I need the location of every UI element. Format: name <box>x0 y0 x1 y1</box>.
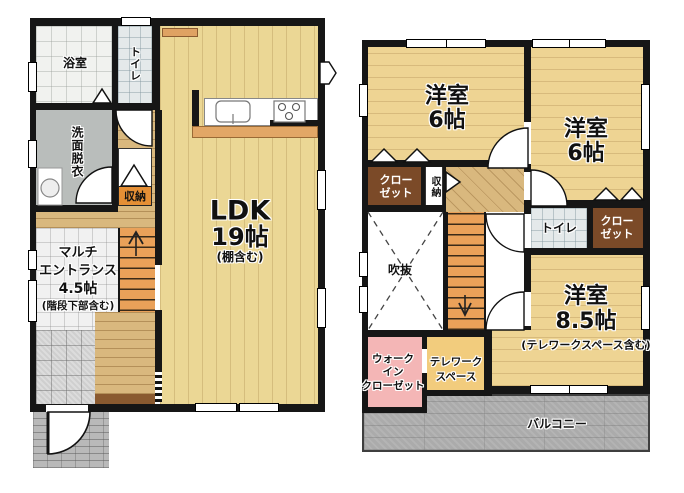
label-toilet-2f: トイレ <box>541 222 577 234</box>
label-entrance-3: 4.5帖 <box>59 282 98 296</box>
label-closet-east-1: クロー <box>601 216 634 227</box>
label-entrance-2: エントランス <box>39 265 117 278</box>
label-wic-2: イン <box>383 367 404 378</box>
label-room-ne-2: 6帖 <box>567 143 604 165</box>
label-entrance-1: マルチ <box>58 247 97 260</box>
label-wic-1: ウォーク <box>372 354 414 365</box>
label-bath: 浴室 <box>63 57 87 69</box>
label-room-south-1: 洋室 <box>564 286 608 308</box>
label-ldk-2: 19帖 <box>211 225 268 249</box>
label-room-south-2: 8.5帖 <box>556 311 617 333</box>
label-room-south-3: (テレワークスペース含む) <box>521 340 650 351</box>
label-washroom: 洗面脱衣 <box>71 126 83 178</box>
label-closet-west-2: ゼット <box>380 188 413 199</box>
label-entrance-4: (階段下部含む) <box>42 301 115 312</box>
label-room-nw-2: 6帖 <box>428 110 465 132</box>
label-balcony: バルコニー <box>527 418 587 430</box>
label-ldk-1: LDK <box>210 198 271 225</box>
label-toilet-1f: トイレ <box>130 46 141 82</box>
label-telework-1: テレワーク <box>430 357 483 368</box>
label-room-nw-1: 洋室 <box>425 86 469 108</box>
label-closet-west-1: クロー <box>380 175 413 186</box>
label-ldk-3: (棚含む) <box>217 251 264 263</box>
label-wic-3: クローゼット <box>362 381 425 392</box>
label-void: 吹抜 <box>388 264 412 276</box>
label-storage-2f: 収納 <box>429 176 439 198</box>
labels: 浴室 トイレ 洗面脱衣 マルチ エントランス 4.5帖 (階段下部含む) LDK… <box>0 0 684 493</box>
label-telework-2: スペース <box>436 372 477 383</box>
floor-plan-image: 収納 <box>0 0 684 493</box>
label-room-ne-1: 洋室 <box>564 119 608 141</box>
label-closet-east-2: ゼット <box>601 229 634 240</box>
